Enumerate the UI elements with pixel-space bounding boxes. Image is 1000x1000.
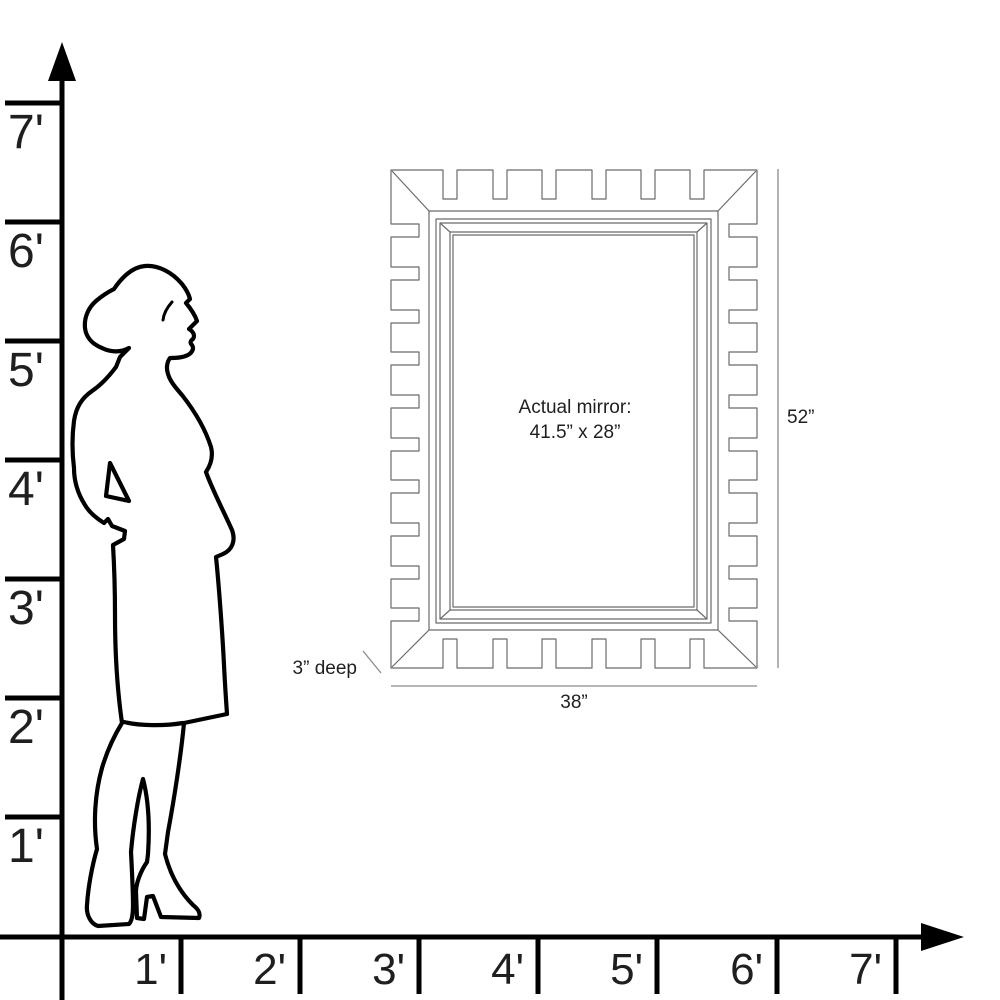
x-axis-tick-label: 2' [216,948,286,992]
x-axis-arrow-icon [921,923,964,951]
y-axis-tick-label: 7' [8,109,44,157]
diagram-canvas [0,0,1000,1000]
x-axis-tick-label: 6' [693,948,763,992]
width-dimension-label: 38” [524,693,624,712]
depth-dimension-label: 3” deep [237,659,357,678]
height-dimension-label: 52” [787,408,814,427]
depth-leader-line [363,651,381,673]
y-axis-tick-label: 2' [8,704,44,752]
y-axis-tick-label: 4' [8,466,44,514]
y-axis-tick-label: 5' [8,347,44,395]
x-axis-tick-label: 4' [454,948,524,992]
x-axis-tick-label: 3' [335,948,405,992]
y-axis-arrow-icon [48,42,76,81]
y-axis-tick-label: 3' [8,585,44,633]
x-axis-tick-label: 5' [573,948,643,992]
y-axis-tick-label: 6' [8,228,44,276]
mirror-size-annotation-line1: Actual mirror: [455,395,695,420]
x-axis-tick-label: 7' [812,948,882,992]
woman-outline [73,266,234,926]
woman-silhouette [73,266,234,926]
mirror-size-annotation-line2: 41.5” x 28” [455,420,695,445]
size-comparison-diagram: 7'6'5'4'3'2'1' 1'2'3'4'5'6'7' Actual mir… [0,0,1000,1000]
y-axis-tick-label: 1' [8,823,44,871]
x-axis-tick-label: 1' [97,948,167,992]
mirror-size-annotation: Actual mirror: 41.5” x 28” [455,395,695,445]
x-axis-ticks [181,937,896,994]
